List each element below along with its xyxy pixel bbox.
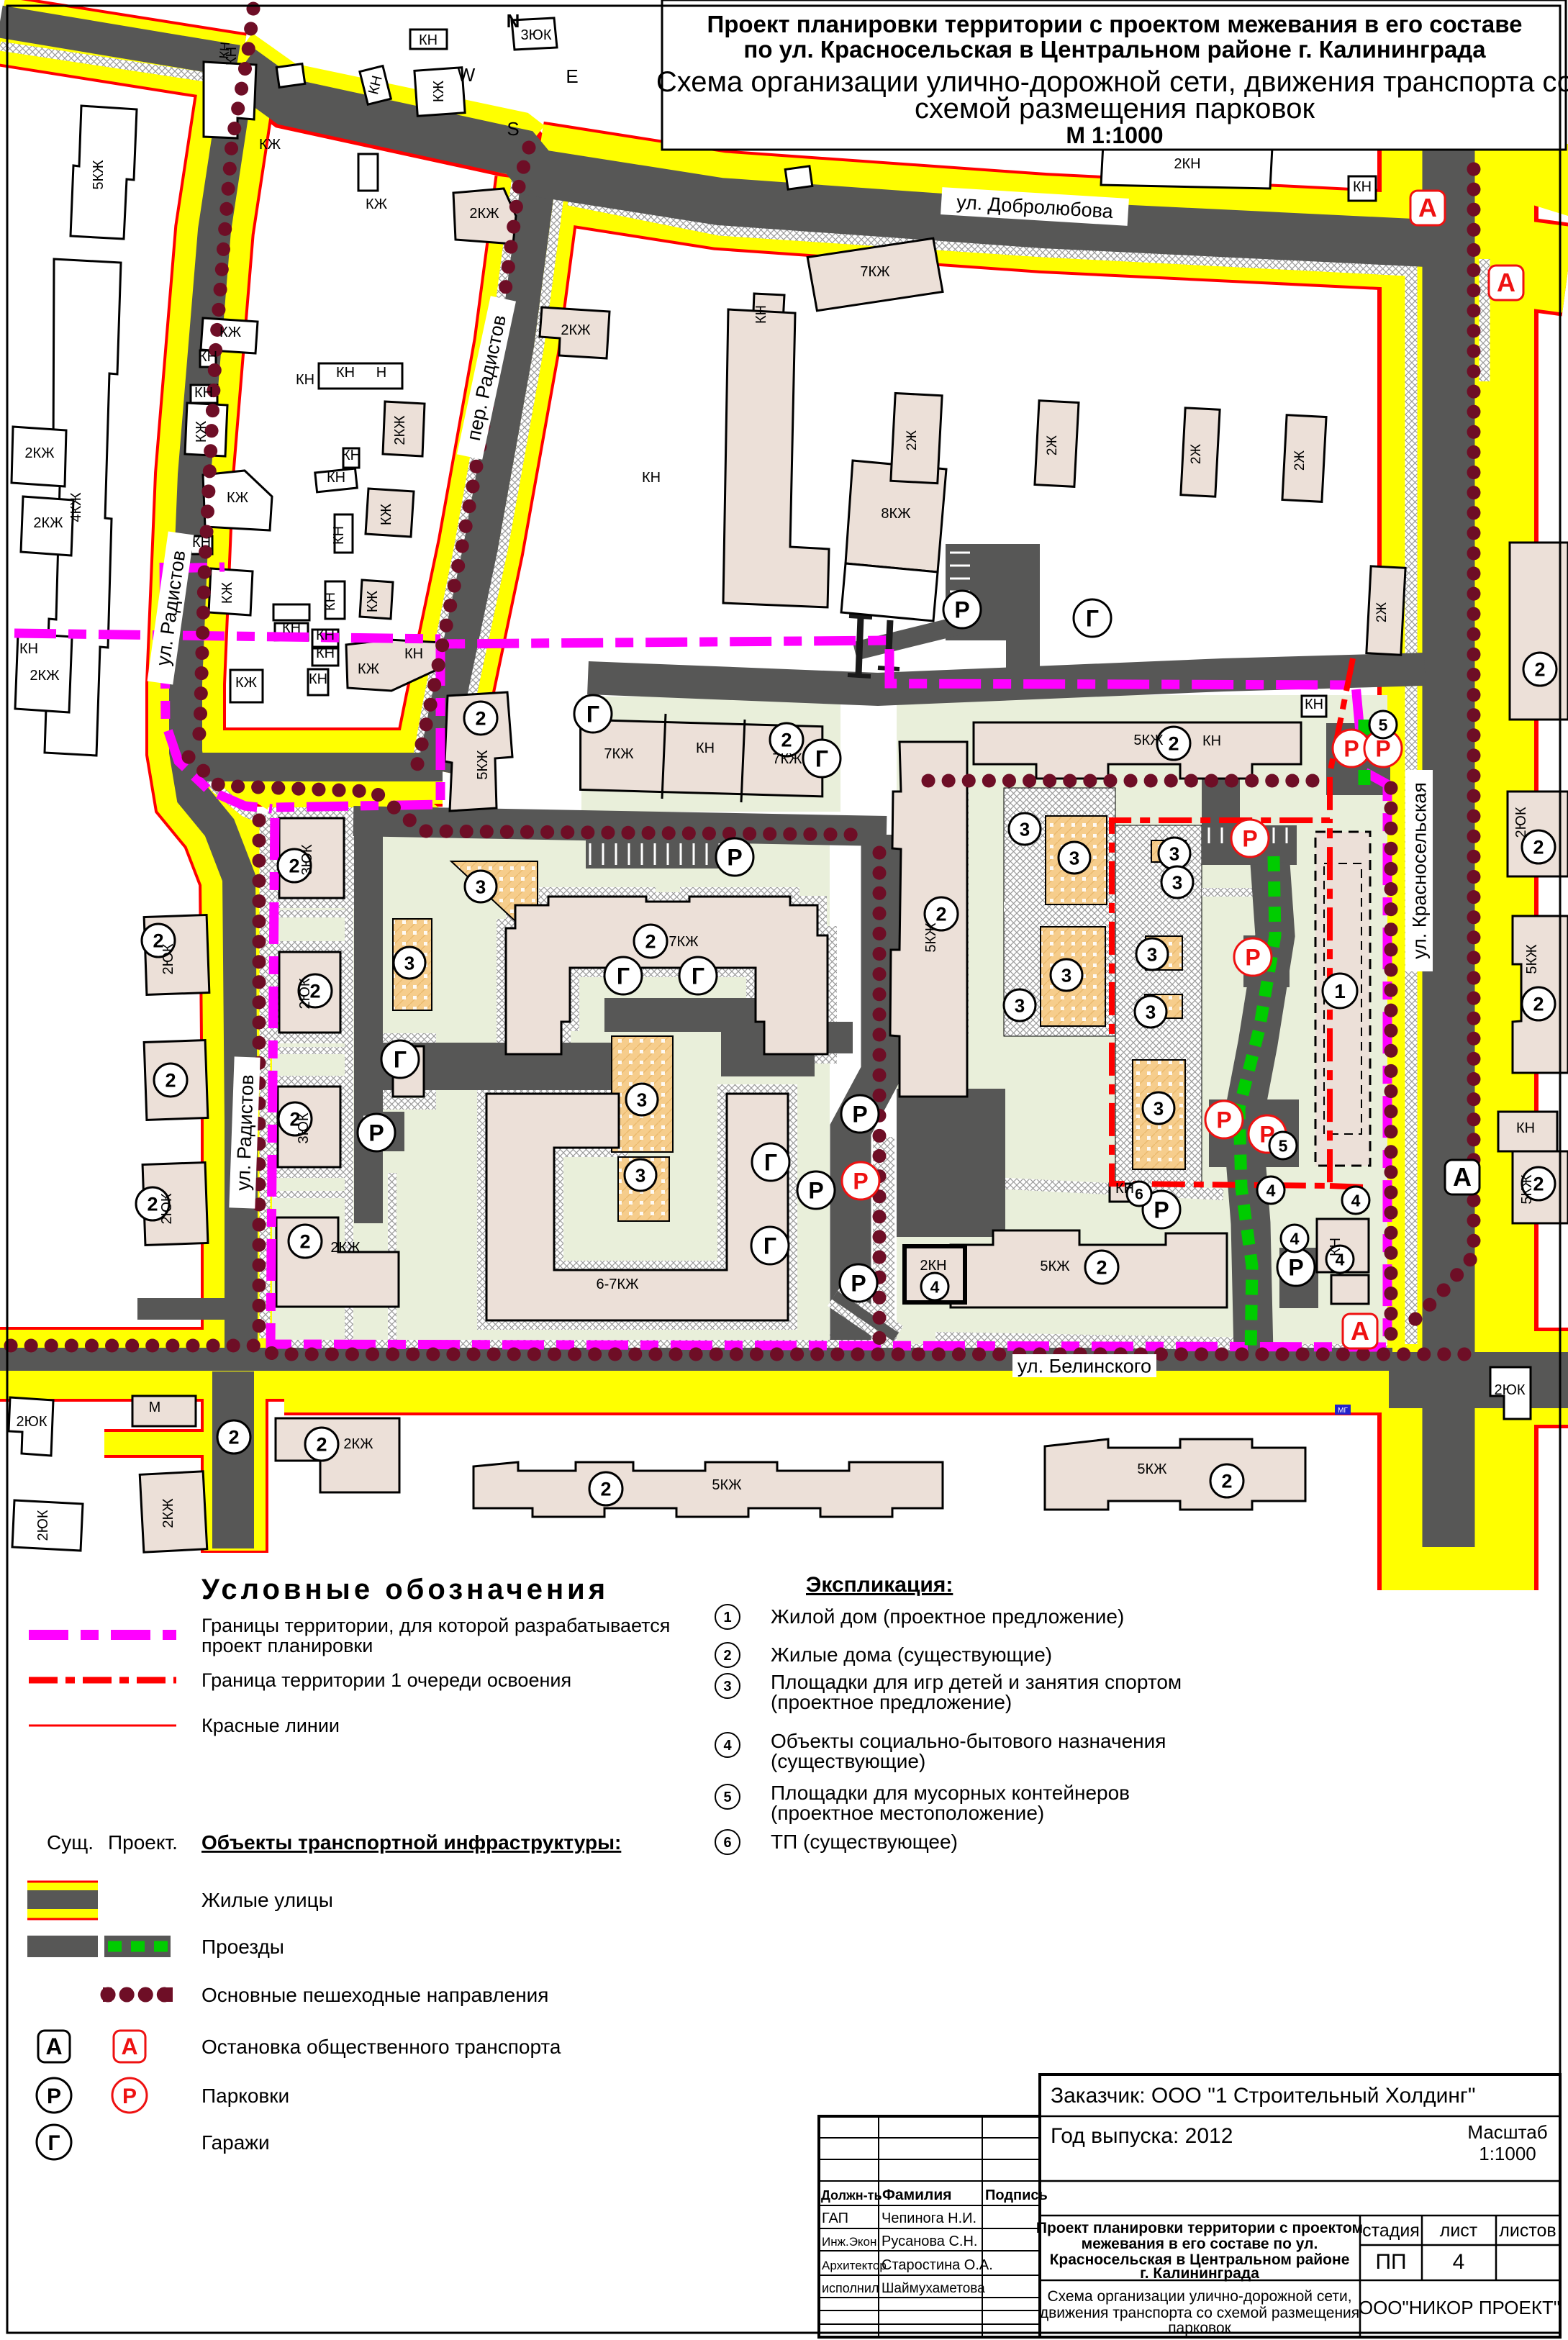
svg-text:Жилой дом (проектное предложен: Жилой дом (проектное предложение) [771, 1605, 1124, 1628]
svg-text:2Ж: 2Ж [905, 430, 920, 450]
svg-text:КН: КН [192, 535, 211, 550]
svg-text:межевания в его составе по ул.: межевания в его составе по ул. [1082, 2236, 1318, 2252]
svg-text:Основные пешеходные направлени: Основные пешеходные направления [201, 1984, 548, 2006]
svg-text:Красные линии: Красные линии [201, 1715, 340, 1736]
svg-text:Г: Г [763, 1233, 776, 1259]
svg-text:лист: лист [1440, 2221, 1478, 2241]
svg-text:3: 3 [1061, 964, 1071, 986]
svg-text:4: 4 [930, 1277, 940, 1296]
svg-text:КН: КН [419, 32, 438, 48]
svg-text:2: 2 [600, 1479, 611, 1500]
svg-text:Р: Р [1245, 945, 1260, 971]
svg-text:2: 2 [1533, 994, 1544, 1015]
svg-text:А: А [1453, 1162, 1472, 1192]
svg-text:Остановка общественного трансп: Остановка общественного транспорта [201, 2036, 561, 2058]
svg-text:движения транспорта со схемой: движения транспорта со схемой размещения [1040, 2305, 1359, 2321]
svg-text:3: 3 [404, 952, 414, 974]
svg-text:КН: КН [282, 620, 301, 636]
svg-text:КН: КН [316, 645, 335, 661]
svg-text:стадия: стадия [1362, 2221, 1420, 2241]
svg-text:N: N [507, 10, 520, 32]
svg-text:Площадки для мусорных контейне: Площадки для мусорных контейнеров [771, 1782, 1130, 1804]
svg-text:парковок: парковок [1168, 2320, 1231, 2336]
svg-text:7КЖ: 7КЖ [772, 751, 802, 767]
svg-text:5КЖ: 5КЖ [1133, 733, 1164, 748]
svg-text:2: 2 [1534, 659, 1545, 681]
svg-text:2КН: 2КН [1174, 156, 1200, 172]
svg-text:7КЖ: 7КЖ [860, 264, 890, 280]
svg-text:Р: Р [954, 597, 969, 623]
svg-text:2: 2 [228, 1427, 239, 1448]
svg-text:Г: Г [394, 1047, 407, 1073]
svg-text:8КЖ: 8КЖ [881, 506, 911, 522]
svg-text:2КЖ: 2КЖ [24, 445, 55, 461]
svg-text:3: 3 [723, 1679, 731, 1695]
svg-text:КН: КН [1353, 179, 1372, 195]
svg-text:Р: Р [122, 2085, 137, 2108]
svg-text:3: 3 [1172, 871, 1182, 893]
svg-text:3: 3 [1147, 943, 1157, 965]
svg-text:2: 2 [935, 904, 946, 925]
svg-text:2КЖ: 2КЖ [343, 1436, 373, 1452]
svg-text:5КЖ: 5КЖ [1137, 1461, 1167, 1477]
svg-text:2: 2 [1096, 1257, 1107, 1279]
svg-text:5: 5 [1379, 715, 1388, 734]
svg-text:2ЮК: 2ЮК [160, 943, 176, 974]
svg-text:КН: КН [642, 470, 661, 486]
svg-text:КЖ: КЖ [365, 590, 381, 612]
svg-text:КН: КН [1305, 697, 1323, 712]
svg-text:2КЖ: 2КЖ [33, 515, 63, 531]
svg-text:КН: КН [316, 627, 335, 643]
svg-text:Г: Г [617, 963, 630, 989]
svg-text:Шаймухаметова: Шаймухаметова [882, 2281, 985, 2296]
svg-text:Р: Р [727, 845, 742, 871]
svg-text:4: 4 [1290, 1229, 1300, 1248]
svg-text:А: А [1418, 193, 1437, 222]
svg-text:ООО"НИКОР ПРОЕКТ": ООО"НИКОР ПРОЕКТ" [1359, 2297, 1560, 2318]
svg-text:КЖ: КЖ [431, 80, 447, 102]
svg-text:Р: Р [1375, 736, 1390, 762]
svg-text:5: 5 [1279, 1136, 1288, 1155]
svg-text:Схема организации улично-дорож: Схема организации улично-дорожной сети, [1047, 2288, 1351, 2305]
svg-text:5КЖ: 5КЖ [1524, 944, 1540, 974]
svg-text:Архитектор: Архитектор [822, 2259, 887, 2272]
svg-text:2: 2 [147, 1194, 158, 1215]
svg-text:КН: КН [19, 641, 38, 657]
svg-text:МГ: МГ [1338, 1407, 1348, 1415]
svg-text:4: 4 [723, 1738, 732, 1754]
svg-text:2Ж: 2Ж [1374, 602, 1390, 622]
svg-text:Старостина О.А.: Старостина О.А. [882, 2257, 993, 2273]
svg-text:Границы территории, для которо: Границы территории, для которой разрабат… [201, 1615, 670, 1636]
svg-text:2КЖ: 2КЖ [469, 206, 499, 222]
svg-text:Р: Р [808, 1178, 823, 1204]
svg-text:5КЖ: 5КЖ [712, 1477, 742, 1493]
svg-text:4КЖ: 4КЖ [68, 492, 84, 522]
svg-text:2Ж: 2Ж [1292, 450, 1308, 471]
svg-text:2ЮК: 2ЮК [159, 1193, 175, 1224]
svg-text:Р: Р [1288, 1255, 1303, 1281]
svg-text:2: 2 [316, 1434, 327, 1456]
svg-text:Г: Г [47, 2131, 60, 2155]
svg-text:исполнил: исполнил [822, 2281, 879, 2295]
svg-text:Г: Г [692, 963, 704, 989]
svg-text:ПП: ПП [1375, 2250, 1406, 2274]
svg-text:2: 2 [645, 931, 656, 953]
svg-text:Должн-ть: Должн-ть [821, 2188, 882, 2203]
svg-text:2: 2 [475, 708, 486, 730]
svg-text:4: 4 [1453, 2250, 1465, 2274]
svg-text:КН: КН [199, 349, 217, 365]
svg-text:4: 4 [1266, 1181, 1276, 1200]
svg-text:3ЮК: 3ЮК [521, 27, 552, 43]
svg-text:Год выпуска: 2012: Год выпуска: 2012 [1051, 2124, 1233, 2148]
svg-text:Сущ.: Сущ. [47, 1831, 94, 1854]
svg-text:КН: КН [1328, 1238, 1343, 1256]
svg-text:6: 6 [1135, 1187, 1143, 1203]
svg-text:Р: Р [1216, 1107, 1231, 1133]
svg-text:2КЖ: 2КЖ [561, 322, 591, 338]
svg-text:3: 3 [1069, 847, 1079, 869]
svg-text:ул. Радистов: ул. Радистов [232, 1074, 258, 1192]
svg-text:Объекты социально-бытового наз: Объекты социально-бытового назначения [771, 1730, 1166, 1752]
svg-text:КН: КН [331, 526, 347, 545]
svg-text:7КЖ: 7КЖ [669, 934, 699, 950]
svg-text:3: 3 [635, 1164, 645, 1186]
svg-text:Чепинога Н.И.: Чепинога Н.И. [882, 2210, 976, 2226]
svg-text:2Ж: 2Ж [1189, 443, 1204, 464]
svg-text:КЖ: КЖ [366, 196, 388, 212]
svg-text:схемой размещения парковок: схемой размещения парковок [915, 93, 1315, 124]
svg-text:КН: КН [296, 372, 314, 388]
svg-text:Р: Р [368, 1120, 384, 1146]
svg-text:(проектное местоположение): (проектное местоположение) [771, 1802, 1044, 1824]
svg-text:2КЖ: 2КЖ [30, 668, 60, 684]
svg-text:Р: Р [1154, 1197, 1169, 1223]
svg-text:Заказчик: ООО "1 Строительный: Заказчик: ООО "1 Строительный Холдинг" [1051, 2084, 1476, 2108]
svg-text:2КЖ: 2КЖ [330, 1240, 361, 1256]
svg-text:Парковки: Парковки [201, 2085, 289, 2107]
svg-text:7КЖ: 7КЖ [604, 746, 634, 762]
svg-text:КН: КН [224, 47, 240, 65]
svg-text:ГАП: ГАП [822, 2210, 848, 2226]
svg-text:Условные обозначения: Условные обозначения [201, 1574, 609, 1605]
svg-text:3: 3 [1154, 1097, 1164, 1119]
svg-text:3: 3 [1146, 1001, 1156, 1022]
svg-text:Г: Г [764, 1150, 777, 1176]
svg-text:ул. Красносельская: ул. Красносельская [1408, 782, 1430, 959]
svg-text:КН: КН [336, 365, 355, 381]
svg-text:2КН: 2КН [920, 1258, 946, 1274]
svg-text:КЖ: КЖ [379, 503, 394, 525]
svg-text:г. Калининграда: г. Калининграда [1140, 2265, 1259, 2282]
svg-text:Площадки для игр детей и занят: Площадки для игр детей и занятия спортом [771, 1671, 1182, 1693]
svg-text:3: 3 [1015, 994, 1025, 1016]
svg-text:М: М [149, 1400, 161, 1415]
svg-text:КЖ: КЖ [358, 661, 380, 677]
svg-text:3ЮК: 3ЮК [296, 1112, 312, 1143]
svg-text:3: 3 [476, 876, 486, 897]
svg-text:2ЮК: 2ЮК [297, 978, 313, 1009]
svg-text:(проектное предложение): (проектное предложение) [771, 1691, 1012, 1713]
svg-text:Н: Н [376, 365, 386, 381]
svg-text:1: 1 [723, 1610, 731, 1625]
svg-text:КН: КН [309, 671, 327, 687]
svg-text:Гаражи: Гаражи [201, 2131, 270, 2154]
svg-text:Масштаб: Масштаб [1467, 2121, 1547, 2143]
svg-text:КЖ: КЖ [227, 490, 249, 506]
svg-text:2ЮК: 2ЮК [1513, 807, 1529, 838]
svg-text:А: А [1497, 268, 1515, 297]
svg-text:3: 3 [1169, 843, 1179, 864]
svg-text:6: 6 [723, 1835, 731, 1851]
svg-text:ТП (существующее): ТП (существующее) [771, 1831, 958, 1853]
svg-text:Р: Р [47, 2085, 61, 2108]
svg-text:листов: листов [1499, 2221, 1556, 2241]
svg-text:КЖ: КЖ [259, 137, 281, 153]
svg-text:2ЮК: 2ЮК [17, 1414, 47, 1430]
svg-text:КЖ: КЖ [219, 325, 242, 340]
svg-text:2: 2 [1533, 837, 1544, 858]
svg-text:2: 2 [289, 856, 299, 877]
svg-text:(существующие): (существующие) [771, 1750, 925, 1772]
svg-text:проект планировки: проект планировки [201, 1635, 373, 1656]
svg-text:КН: КН [1202, 733, 1221, 749]
svg-text:3: 3 [637, 1089, 647, 1110]
svg-text:2ЮК: 2ЮК [35, 1510, 51, 1541]
svg-text:Проект планировки территории с: Проект планировки территории с проектом [1036, 2220, 1363, 2236]
svg-text:Инж.Экон.: Инж.Экон. [822, 2235, 880, 2249]
svg-text:Р: Р [1343, 736, 1359, 762]
svg-text:Граница территории 1 очереди о: Граница территории 1 очереди освоения [201, 1669, 571, 1691]
svg-text:2: 2 [723, 1648, 731, 1664]
svg-text:КЖ: КЖ [194, 420, 209, 443]
svg-text:5КЖ: 5КЖ [91, 160, 107, 190]
svg-text:1: 1 [1334, 980, 1346, 1002]
svg-text:Проезды: Проезды [201, 1936, 284, 1958]
svg-text:Г: Г [586, 702, 599, 727]
svg-text:Фамилия: Фамилия [882, 2187, 952, 2203]
svg-text:5КЖ: 5КЖ [1519, 1174, 1535, 1205]
svg-text:КН: КН [404, 646, 423, 662]
svg-text:6-7КЖ: 6-7КЖ [596, 1276, 639, 1292]
svg-text:3: 3 [1020, 818, 1030, 840]
svg-text:М 1:1000: М 1:1000 [1066, 122, 1163, 148]
svg-text:Объекты транспортной инфрастру: Объекты транспортной инфраструктуры: [201, 1831, 621, 1854]
svg-text:Экспликация:: Экспликация: [806, 1573, 953, 1597]
svg-text:2: 2 [1168, 733, 1179, 755]
svg-text:2: 2 [299, 1231, 310, 1253]
svg-text:Жилые дома (существующие): Жилые дома (существующие) [771, 1643, 1052, 1666]
svg-text:КН: КН [322, 592, 338, 611]
svg-text:3ЮК: 3ЮК [299, 844, 315, 875]
svg-text:W: W [458, 64, 476, 86]
svg-text:Проект.: Проект. [108, 1831, 178, 1854]
svg-text:Подпись: Подпись [985, 2187, 1048, 2203]
svg-text:Р: Р [853, 1169, 868, 1194]
svg-text:КН: КН [1516, 1120, 1535, 1136]
svg-text:5КЖ: 5КЖ [475, 750, 491, 780]
svg-text:5КЖ: 5КЖ [1040, 1259, 1070, 1274]
svg-text:Г: Г [815, 746, 828, 772]
svg-text:Проект планировки территории с: Проект планировки территории с проектом … [707, 11, 1523, 37]
svg-text:2КЖ: 2КЖ [160, 1498, 176, 1528]
svg-text:Г: Г [1086, 606, 1099, 632]
svg-text:5: 5 [723, 1790, 731, 1805]
svg-text:по ул. Красносельская в Центра: по ул. Красносельская в Центральном райо… [743, 36, 1486, 63]
svg-text:Р: Р [852, 1102, 867, 1128]
svg-text:КН: КН [327, 470, 345, 486]
svg-text:Жилые улицы: Жилые улицы [201, 1889, 333, 1911]
svg-text:Р: Р [851, 1271, 866, 1297]
svg-text:КН: КН [194, 385, 213, 401]
svg-text:2: 2 [1221, 1471, 1232, 1492]
svg-text:2: 2 [781, 730, 792, 751]
svg-text:2Ж: 2Ж [1045, 435, 1060, 455]
svg-text:E: E [566, 65, 578, 87]
svg-text:КЖ: КЖ [219, 581, 235, 604]
svg-text:S: S [507, 118, 519, 140]
svg-text:Р: Р [1242, 826, 1257, 852]
svg-text:А: А [121, 2033, 137, 2059]
svg-text:КН: КН [696, 740, 715, 756]
svg-text:Русанова С.Н.: Русанова С.Н. [882, 2234, 978, 2249]
svg-text:1:1000: 1:1000 [1479, 2143, 1536, 2164]
svg-text:КН: КН [753, 305, 769, 324]
svg-text:КН: КН [1115, 1181, 1134, 1197]
svg-text:2КЖ: 2КЖ [392, 415, 408, 445]
svg-text:КЖ: КЖ [235, 675, 258, 691]
svg-text:КН: КН [342, 448, 361, 463]
svg-text:А: А [1351, 1316, 1369, 1346]
svg-text:4: 4 [1351, 1191, 1361, 1210]
svg-text:2ЮК: 2ЮК [1495, 1382, 1526, 1398]
svg-text:ул. Белинского: ул. Белинского [1018, 1355, 1151, 1377]
svg-text:2: 2 [165, 1070, 176, 1092]
svg-text:5КЖ: 5КЖ [923, 922, 939, 953]
svg-text:А: А [45, 2033, 62, 2059]
